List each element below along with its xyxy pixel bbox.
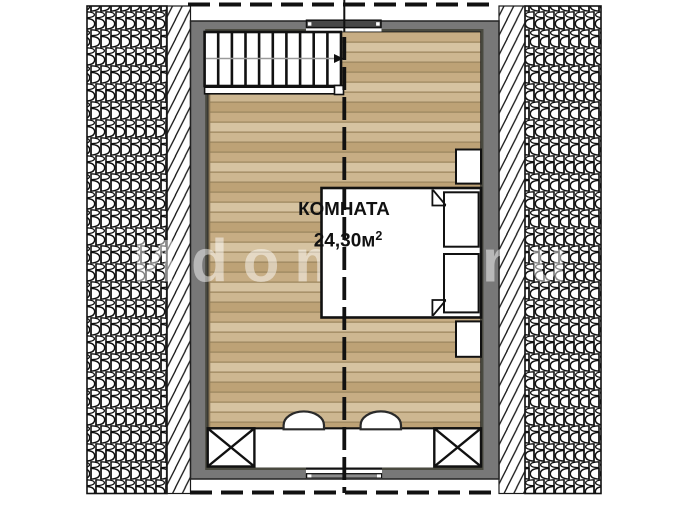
- svg-text:КОМНАТА: КОМНАТА: [298, 198, 390, 219]
- svg-text:24,30м2: 24,30м2: [314, 229, 383, 252]
